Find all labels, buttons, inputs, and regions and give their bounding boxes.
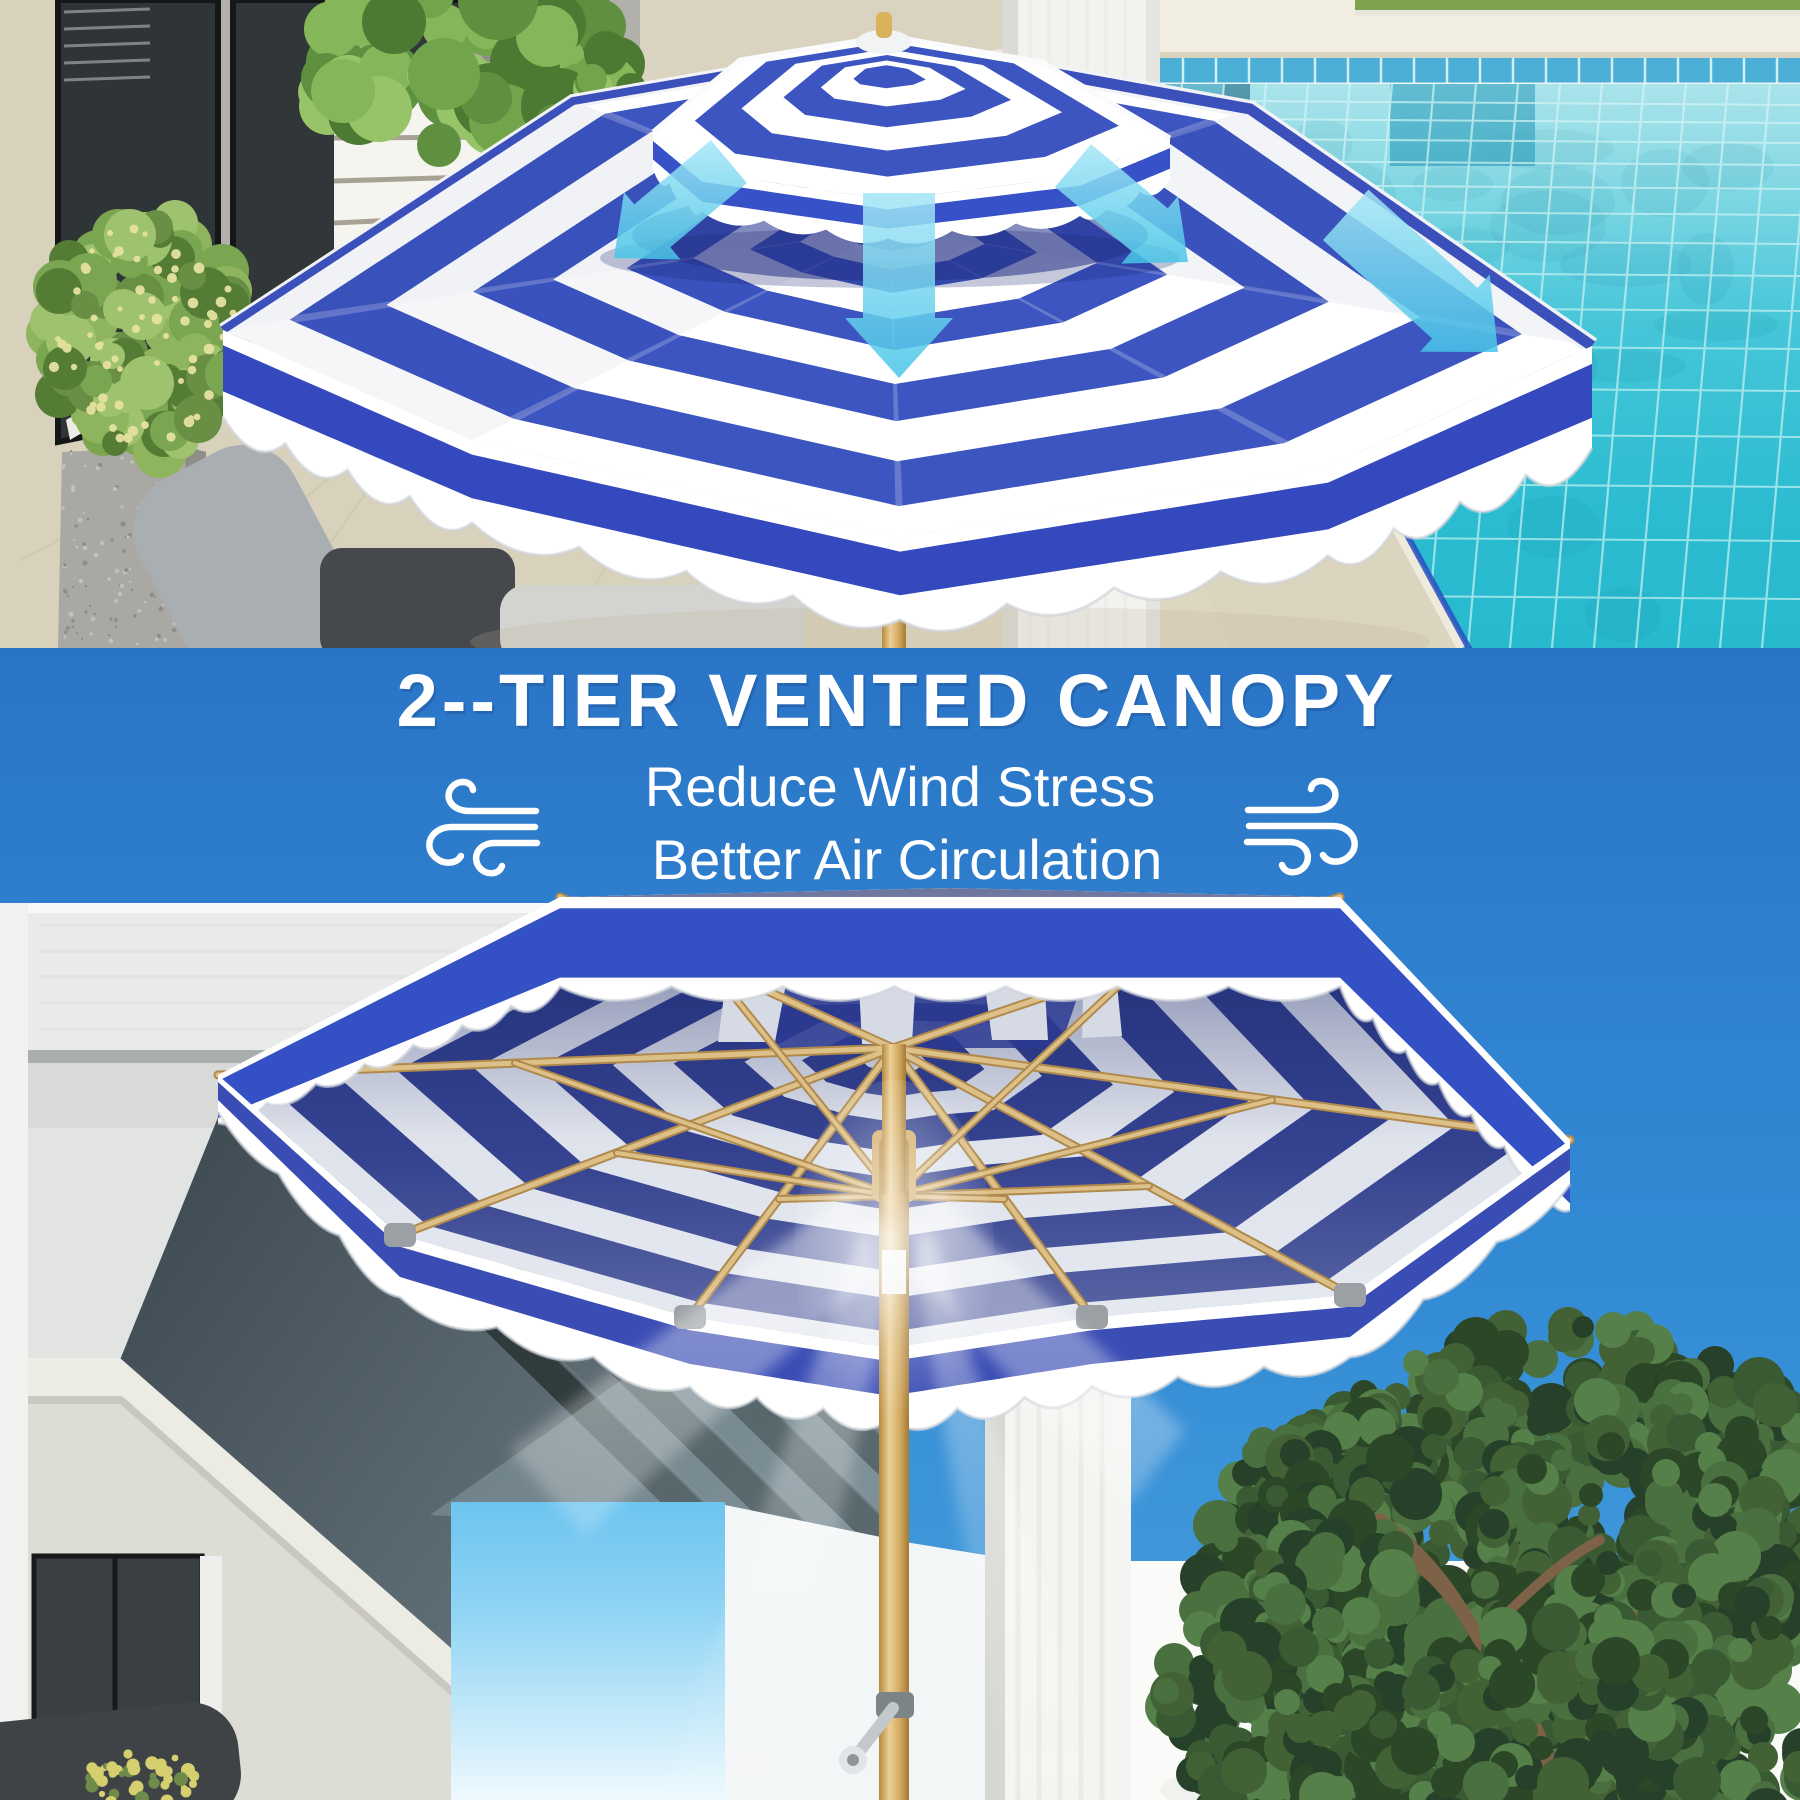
svg-text:Better Air Circulation: Better Air Circulation (652, 828, 1162, 891)
svg-text:2--TIER VENTED CANOPY: 2--TIER VENTED CANOPY (397, 659, 1398, 742)
svg-text:Reduce Wind Stress: Reduce Wind Stress (645, 755, 1155, 818)
